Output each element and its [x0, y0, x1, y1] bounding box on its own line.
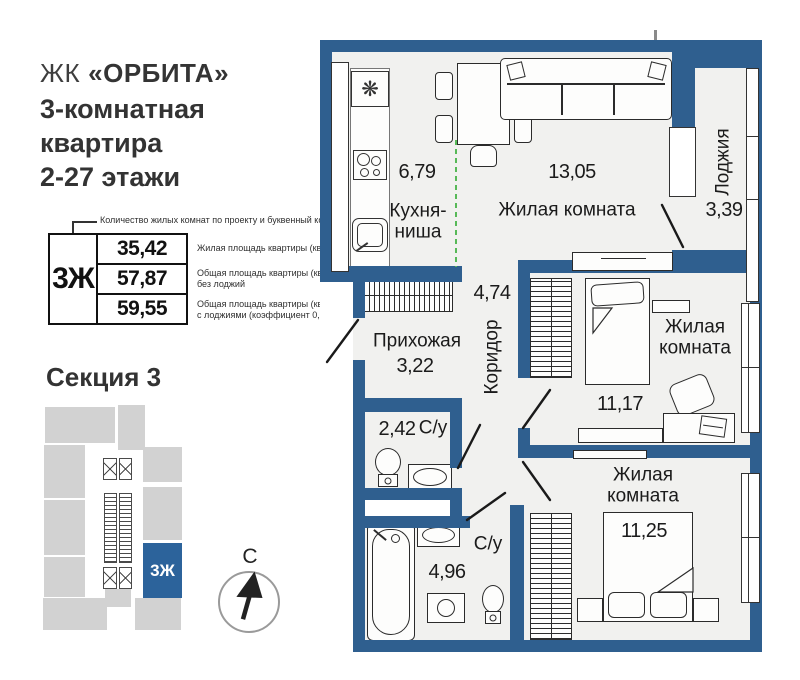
- wall: [353, 640, 762, 652]
- nightstand: [577, 598, 603, 622]
- complex-prefix: ЖК: [40, 58, 80, 88]
- minimap-unit: [44, 500, 85, 555]
- living-area-desc: Жилая площадь квартиры (кв.м): [197, 243, 333, 254]
- hallway-wardrobe: [363, 278, 453, 312]
- living-room-label: Жилая комната: [498, 199, 635, 220]
- bathroom2-door-swing: [467, 493, 505, 520]
- kitchen-sink-icon: [352, 218, 388, 252]
- wall: [353, 266, 365, 318]
- bed-pillow: [650, 592, 687, 618]
- corridor-label: Коридор: [481, 319, 502, 394]
- ventilation-shaft: [365, 500, 450, 516]
- sofa: [500, 58, 672, 120]
- apartment-code: 3Ж: [50, 235, 98, 323]
- chair: [435, 115, 453, 143]
- minimap-current-unit: 3Ж: [143, 543, 182, 598]
- wall: [510, 505, 524, 652]
- minimap-unit: [44, 445, 85, 498]
- section-title: Секция 3: [46, 362, 161, 393]
- bedroom1-area-value: 11,17: [597, 393, 643, 415]
- toilet-icon: [375, 448, 401, 476]
- bedroom1-window: [741, 303, 760, 433]
- bedroom1-label: Жилая комната: [659, 317, 731, 360]
- complex-name: «ОРБИТА»: [88, 58, 229, 88]
- bedroom2-area-value: 11,25: [621, 520, 667, 542]
- window-divider: [747, 136, 758, 137]
- area-values: 35,42 57,87 59,55: [98, 235, 186, 323]
- elevator-icon: [119, 458, 132, 480]
- apartment-floor-plan: ❋: [320, 40, 762, 652]
- wall: [353, 516, 470, 528]
- bedroom1-wardrobe: [530, 278, 572, 378]
- hallway-label: Прихожая: [373, 330, 461, 351]
- wall: [518, 268, 530, 378]
- elevator-icon: [103, 567, 117, 589]
- minimap-unit: [44, 557, 85, 597]
- wc2-area-value: 4,96: [429, 561, 466, 583]
- total-area-desc: Общая площадь квартиры (кв.м) без лоджий: [197, 268, 334, 289]
- bedroom2-wardrobe: [530, 513, 572, 640]
- desk-chair: [667, 372, 717, 419]
- living-area-value: 35,42: [98, 235, 186, 265]
- kitchen-area-value: 6,79: [399, 161, 436, 183]
- floor-plan-page: ЖК«ОРБИТА» 3-комнатная квартира 2-27 эта…: [0, 0, 800, 680]
- section-minimap: 3Ж: [43, 403, 189, 631]
- apartment-title: 3-комнатная квартира 2-27 этажи: [40, 92, 205, 194]
- wc1-area-value: 2,42: [379, 418, 416, 440]
- minimap-unit: [43, 598, 107, 630]
- wc2-label: С/у: [474, 533, 503, 554]
- kitchen-window: [331, 62, 349, 272]
- loggia-inner-window: [669, 127, 696, 197]
- toilet-tank: [485, 611, 501, 624]
- laptop-icon: [699, 415, 727, 437]
- compass: С: [215, 545, 285, 633]
- elevator-icon: [103, 458, 117, 480]
- loggia-area-value: 3,39: [706, 199, 743, 221]
- stairs-icon: [119, 493, 132, 563]
- minimap-unit: [45, 407, 115, 443]
- washing-machine-icon: [427, 593, 465, 623]
- nightstand: [693, 598, 719, 622]
- bedroom2-label: Жилая комната: [584, 465, 703, 508]
- corridor-area-value: 4,74: [474, 282, 511, 304]
- stove-icon: [353, 150, 387, 180]
- exterior-area: [320, 282, 353, 652]
- toilet-icon: [482, 585, 504, 613]
- living-area-value: 13,05: [548, 161, 596, 183]
- minimap-unit: [143, 447, 182, 482]
- bathroom-sink-icon: [408, 464, 452, 490]
- complex-brand: ЖК«ОРБИТА»: [40, 58, 229, 89]
- minimap-unit: [105, 589, 131, 607]
- kitchen-label: Кухня- ниша: [389, 201, 446, 244]
- tv: [573, 450, 647, 459]
- stairs-icon: [104, 493, 117, 563]
- minimap-unit: [135, 598, 181, 630]
- extractor-fan-icon: ❋: [351, 71, 389, 107]
- bathtub-icon: [367, 523, 415, 641]
- tv-console: [578, 428, 663, 443]
- minimap-unit: [118, 405, 145, 450]
- tv-console: [572, 252, 673, 271]
- chair: [470, 145, 497, 167]
- hallway-area-value: 3,22: [397, 355, 434, 377]
- wall: [353, 398, 462, 412]
- callout-line-horizontal: [72, 221, 97, 223]
- minimap-unit: [143, 487, 182, 540]
- window-divider: [747, 199, 758, 200]
- loggia-glazing: [746, 68, 759, 302]
- bedroom1-door-swing: [523, 390, 550, 428]
- bedroom2-door-swing: [523, 462, 550, 500]
- chair: [435, 72, 453, 100]
- loggia-door-opening: [672, 197, 695, 250]
- total-area-with-loggia-desc: Общая площадь квартиры (кв.м) с лоджиями…: [197, 299, 334, 320]
- bed-pillow: [608, 592, 645, 618]
- total-area-value: 57,87: [98, 265, 186, 295]
- loggia-label: Лоджия: [712, 128, 733, 195]
- nightstand: [652, 300, 690, 313]
- table-callout-label: Количество жилых комнат по проекту и бук…: [100, 215, 328, 225]
- bedroom2-window: [741, 473, 760, 603]
- elevator-icon: [119, 567, 132, 589]
- total-area-with-loggia-value: 59,55: [98, 295, 186, 323]
- wc1-label: С/у: [419, 417, 448, 438]
- toilet-tank: [378, 474, 398, 487]
- wall: [450, 398, 462, 468]
- bed-pillow: [590, 281, 644, 307]
- area-info-table: 3Ж 35,42 57,87 59,55: [48, 233, 188, 325]
- wall: [353, 488, 462, 500]
